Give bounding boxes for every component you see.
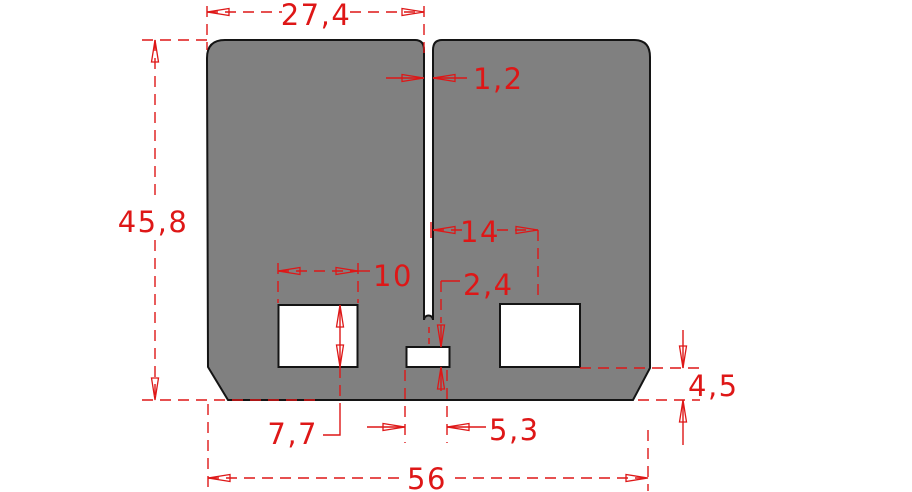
dim-label-left-hole-width: 10	[373, 259, 413, 293]
dim-label-bottom-edge-height: 4,5	[688, 369, 739, 403]
dim-label-center-hole-width: 5,3	[489, 413, 540, 447]
dim-label-overall-height: 45,8	[118, 205, 189, 239]
center-cutout	[407, 347, 450, 367]
part-geometry	[207, 40, 650, 400]
dim-label-slot-width: 1,2	[473, 62, 524, 96]
right-cutout	[500, 304, 580, 367]
cad-drawing-canvas: 27,4 1,2 45,8 14 10 2,4 7,7 5,3 4,5 56	[0, 0, 912, 492]
dim-label-left-hole-height: 7,7	[267, 417, 318, 451]
dim-label-overall-width: 56	[407, 462, 447, 492]
drawing-svg: 27,4 1,2 45,8 14 10 2,4 7,7 5,3 4,5 56	[0, 0, 912, 492]
dim-label-center-hole-height: 2,4	[463, 268, 514, 302]
dim-label-slot-to-hole: 14	[460, 215, 500, 249]
dim-label-half-width-top: 27,4	[281, 0, 352, 32]
left-cutout	[279, 305, 358, 367]
